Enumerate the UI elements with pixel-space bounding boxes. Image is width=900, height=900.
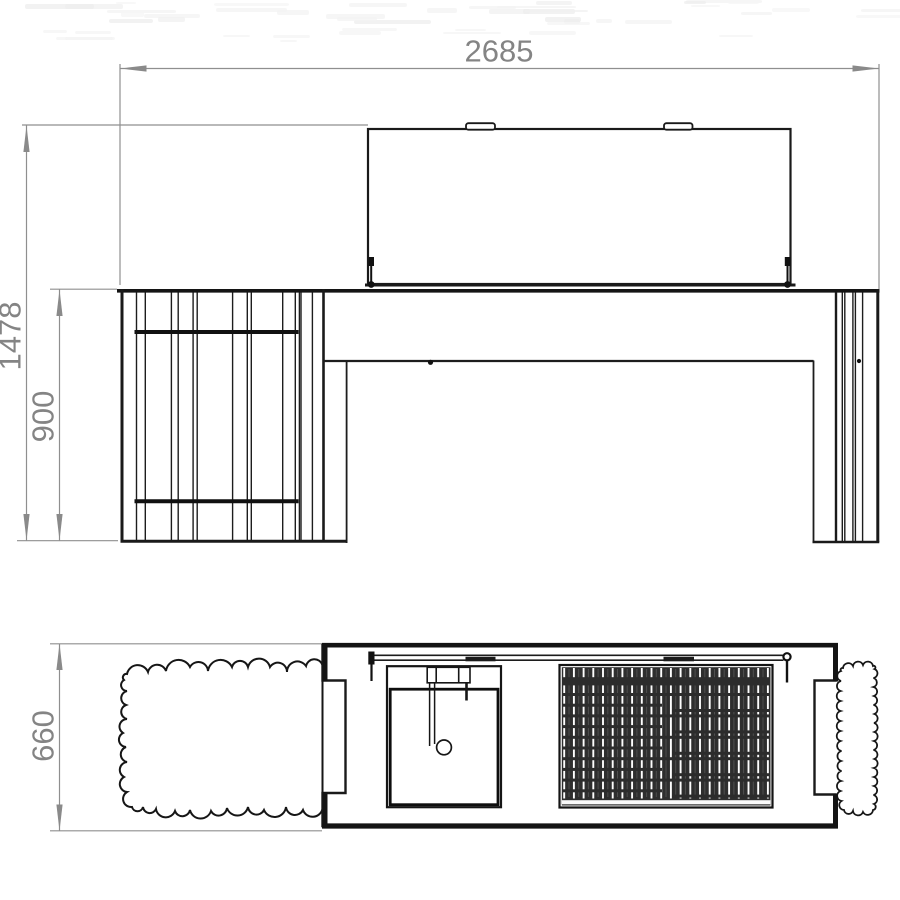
svg-text:900: 900 (26, 391, 61, 443)
svg-text:2685: 2685 (465, 34, 534, 69)
svg-text:660: 660 (26, 710, 61, 762)
svg-text:1478: 1478 (0, 302, 28, 371)
